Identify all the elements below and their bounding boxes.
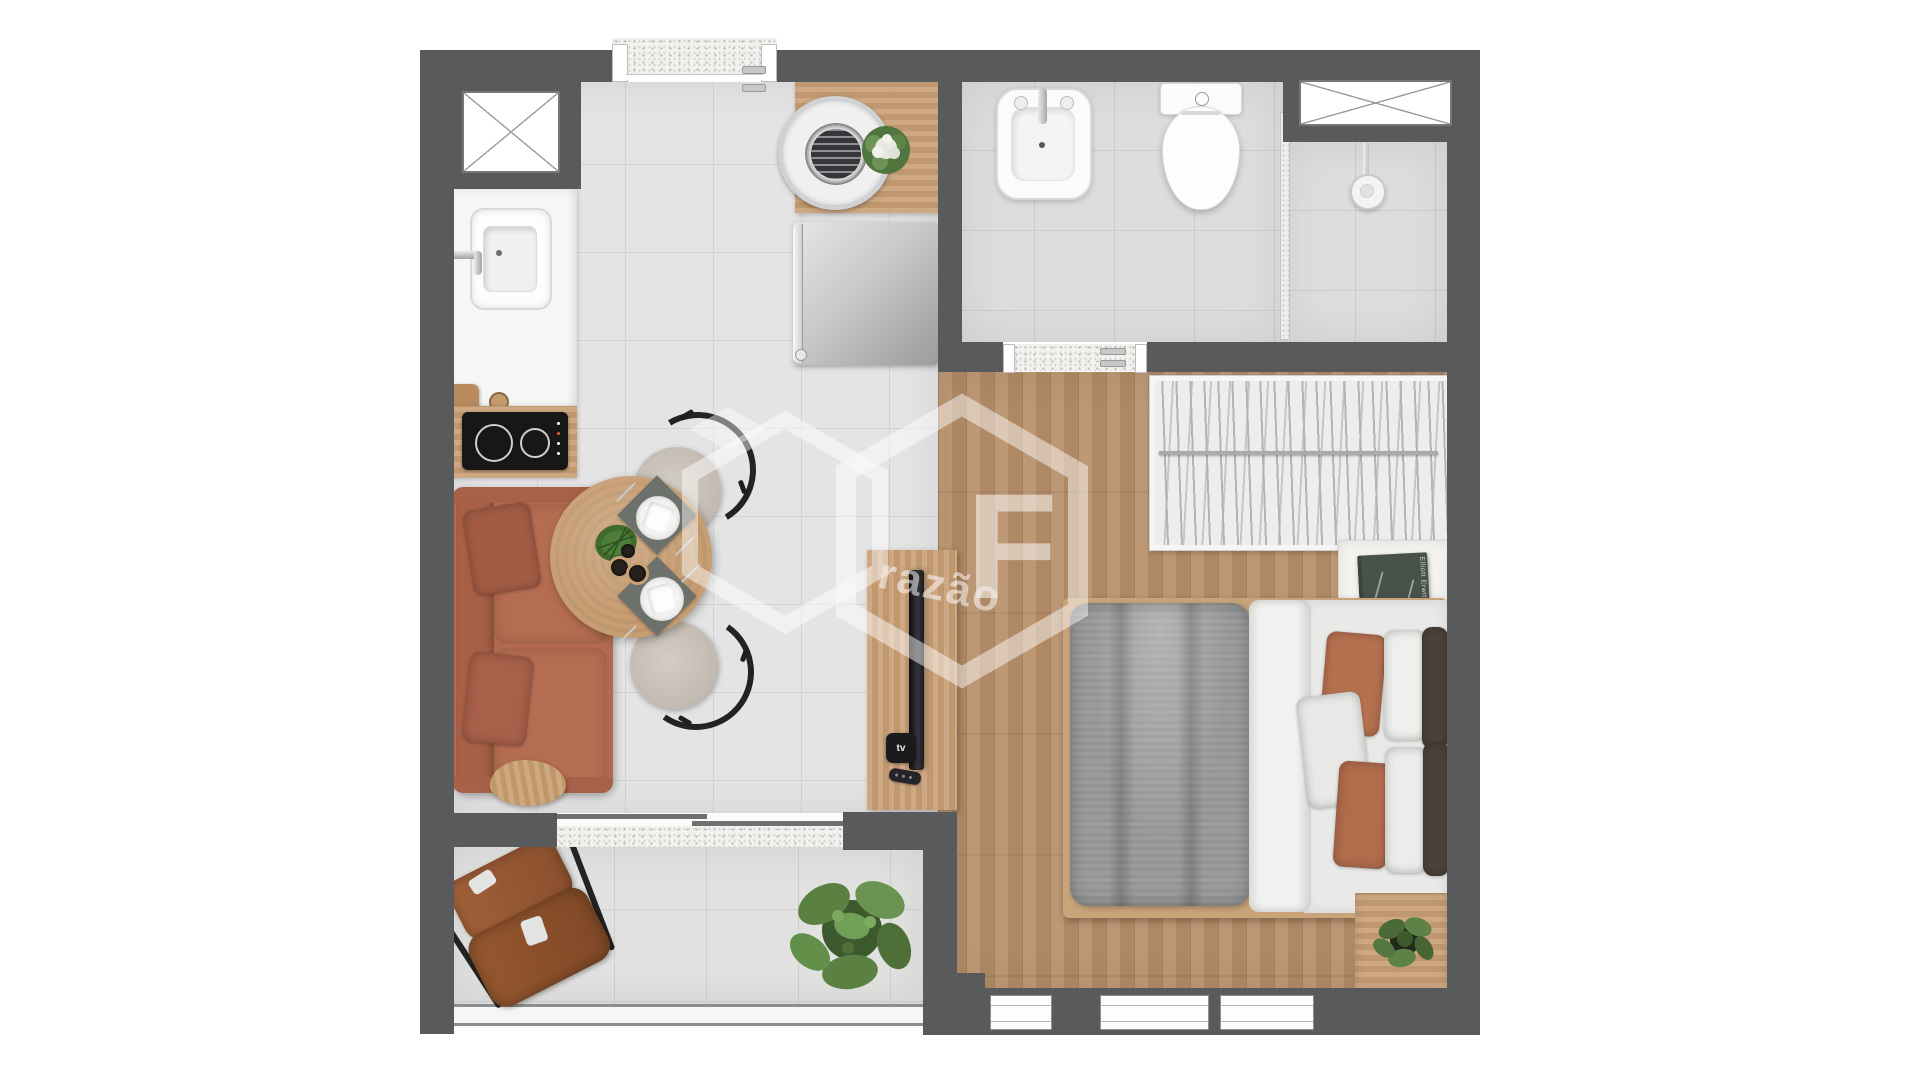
burner-icon <box>475 424 513 462</box>
wall-balcony-right-vertical <box>923 850 957 975</box>
balcony-railing <box>450 1004 923 1026</box>
bedroom-window <box>1220 995 1314 1030</box>
frazao-watermark: F razão <box>670 355 1090 700</box>
faucet-knob-icon <box>1014 96 1028 110</box>
pillow-white <box>1384 630 1426 740</box>
bedroom-window <box>1100 995 1209 1030</box>
refrigerator <box>793 222 938 365</box>
faucet-icon <box>1038 88 1047 124</box>
wall-bathroom-bottom-b <box>1147 342 1447 372</box>
flush-button-icon <box>1195 92 1209 106</box>
balcony-sliding-door <box>557 813 843 847</box>
balcony-plant <box>778 856 926 1004</box>
kitchen-faucet-spout-icon <box>474 251 482 275</box>
wall-right <box>1447 50 1480 1035</box>
sliding-door-rail <box>692 821 843 826</box>
shower-glass-partition <box>1280 112 1290 340</box>
duvet <box>1070 603 1250 906</box>
wardrobe-hanger-rack <box>1150 376 1457 550</box>
sofa-throw-pillow <box>461 651 534 747</box>
espresso-cup <box>626 562 649 585</box>
floorplan-canvas: Elliott Erwitt Snaps <box>0 0 1920 1080</box>
double-bed <box>1063 598 1447 918</box>
wall-balcony-left <box>450 813 557 847</box>
door-jamb <box>1135 344 1147 373</box>
pillow-white <box>1385 747 1427 873</box>
fridge-door-edge <box>793 224 803 363</box>
entry-door-handle-icon <box>742 66 764 92</box>
wall-bathroom-left <box>938 50 962 372</box>
pillow-dark <box>1423 742 1449 876</box>
shower-head-icon <box>1350 174 1386 210</box>
counter-plant <box>856 120 916 180</box>
kitchen-sink <box>470 208 552 310</box>
sofa-throw-pillow <box>462 501 543 597</box>
apple-tv-box: tv <box>886 733 916 763</box>
wall-corner-block <box>923 973 985 1035</box>
bedroom-window <box>990 995 1052 1030</box>
faucet-knob-icon <box>1060 96 1074 110</box>
sink-drain-icon <box>496 250 502 256</box>
sliding-door-rail <box>557 814 707 819</box>
closet-rod-icon <box>1159 451 1438 455</box>
apple-tv-label: tv <box>897 743 906 754</box>
wall-left <box>420 50 454 1034</box>
sink-drain-icon <box>1039 142 1045 148</box>
burner-icon <box>520 428 550 458</box>
bathroom-door-handle-icon <box>1100 348 1124 366</box>
duct-shaft-icon <box>462 91 560 173</box>
side-table <box>490 760 566 806</box>
wall-balcony-right <box>843 812 957 850</box>
bathroom-sink <box>996 88 1092 200</box>
induction-cooktop <box>462 412 568 470</box>
bedroom-plant <box>1368 903 1442 977</box>
wall-top-middle <box>777 50 1283 82</box>
duct-shaft-icon <box>1299 80 1452 126</box>
pillow-dark <box>1422 627 1448 749</box>
